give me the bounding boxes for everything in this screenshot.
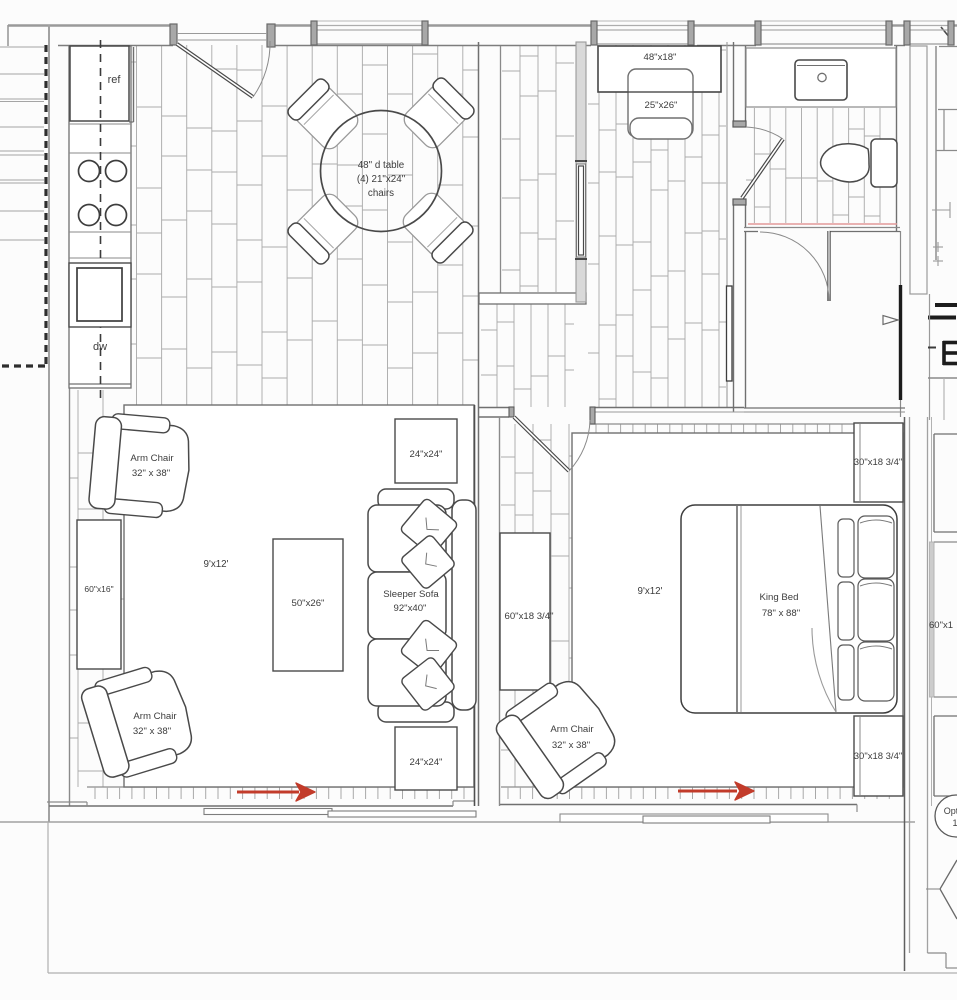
svg-text:32" x 38": 32" x 38" [132, 468, 170, 479]
svg-text:(4) 21"x24": (4) 21"x24" [357, 174, 406, 185]
svg-text:King Bed: King Bed [760, 592, 799, 603]
svg-text:78" x 88": 78" x 88" [762, 608, 800, 619]
svg-text:Sleeper Sofa: Sleeper Sofa [383, 589, 439, 600]
svg-text:chairs: chairs [368, 188, 394, 199]
svg-text:Arm Chair: Arm Chair [133, 711, 177, 722]
svg-text:24"x24": 24"x24" [410, 449, 443, 460]
svg-text:25"x26": 25"x26" [645, 100, 678, 111]
svg-text:Opt: Opt [944, 806, 957, 816]
svg-text:32" x 38": 32" x 38" [133, 726, 171, 737]
svg-text:Arm Chair: Arm Chair [130, 453, 174, 464]
svg-text:24"x24": 24"x24" [410, 757, 443, 768]
svg-text:30"x18 3/4": 30"x18 3/4" [854, 751, 902, 762]
svg-text:32" x 38": 32" x 38" [552, 740, 590, 751]
svg-text:1: 1 [952, 818, 957, 828]
svg-text:Arm Chair: Arm Chair [550, 724, 594, 735]
svg-text:48" d table: 48" d table [358, 160, 405, 171]
svg-text:dw: dw [93, 341, 107, 353]
svg-text:9'x12': 9'x12' [638, 586, 663, 597]
svg-text:9'x12': 9'x12' [204, 559, 229, 570]
svg-text:ref: ref [108, 74, 122, 86]
svg-text:60"x16": 60"x16" [84, 584, 113, 594]
svg-text:60"x1: 60"x1 [929, 620, 953, 631]
svg-text:60"x18 3/4": 60"x18 3/4" [505, 611, 554, 622]
svg-text:48"x18": 48"x18" [644, 52, 677, 63]
svg-text:50"x26": 50"x26" [292, 598, 325, 609]
svg-text:30"x18 3/4": 30"x18 3/4" [854, 457, 902, 468]
svg-text:92"x40": 92"x40" [394, 603, 427, 614]
